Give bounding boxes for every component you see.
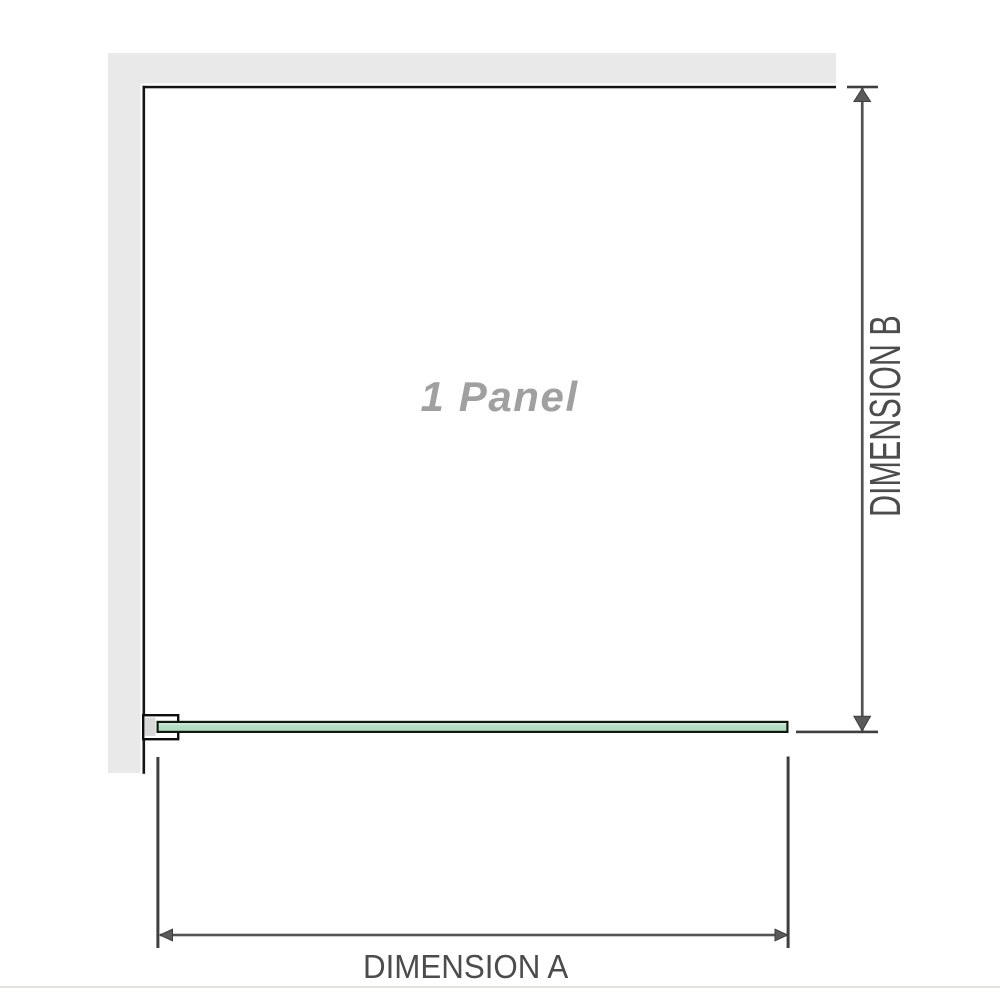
- svg-text:DIMENSION A: DIMENSION A: [363, 948, 569, 985]
- svg-text:DIMENSION B: DIMENSION B: [861, 315, 910, 517]
- svg-text:1 Panel: 1 Panel: [421, 373, 579, 420]
